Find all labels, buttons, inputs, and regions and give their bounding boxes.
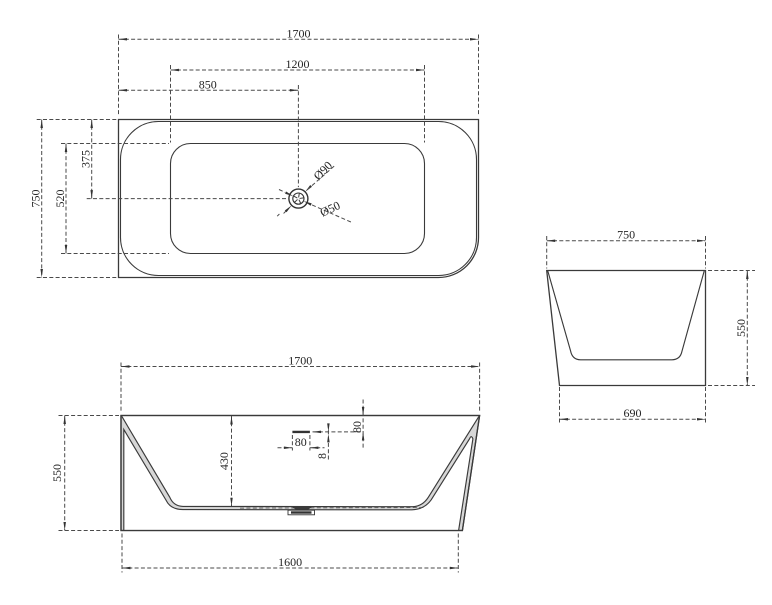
svg-text:1700: 1700 <box>288 354 312 368</box>
svg-text:750: 750 <box>29 190 43 208</box>
svg-text:550: 550 <box>734 319 748 337</box>
svg-text:80: 80 <box>350 421 364 433</box>
svg-text:1200: 1200 <box>286 57 310 71</box>
svg-text:520: 520 <box>53 190 67 208</box>
svg-text:430: 430 <box>217 452 231 470</box>
svg-text:850: 850 <box>199 77 217 91</box>
svg-text:690: 690 <box>624 406 642 420</box>
svg-text:1700: 1700 <box>287 26 311 40</box>
svg-text:8: 8 <box>315 453 329 459</box>
svg-text:80: 80 <box>295 435 307 449</box>
svg-text:550: 550 <box>50 464 64 482</box>
svg-text:375: 375 <box>79 150 93 168</box>
svg-text:750: 750 <box>617 228 635 242</box>
svg-text:1600: 1600 <box>278 555 302 569</box>
